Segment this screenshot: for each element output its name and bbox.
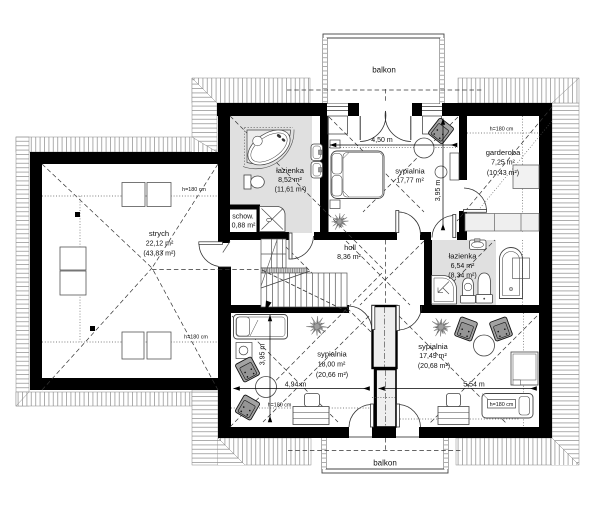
svg-text:h=180 cm: h=180 cm <box>490 402 514 408</box>
svg-text:(20,66 m²): (20,66 m²) <box>316 372 348 379</box>
svg-text:h=180 cm: h=180 cm <box>268 403 292 409</box>
svg-text:h=180 cm: h=180 cm <box>184 335 208 341</box>
svg-text:holl: holl <box>344 243 356 252</box>
svg-text:(43,83 m²): (43,83 m²) <box>143 251 175 258</box>
svg-text:łazienka: łazienka <box>449 252 478 261</box>
svg-text:h=180 cm: h=180 cm <box>490 127 514 133</box>
svg-text:strych: strych <box>149 229 169 238</box>
svg-text:18,00 m²: 18,00 m² <box>318 362 346 369</box>
svg-text:balkon: balkon <box>372 66 396 75</box>
svg-text:22,12 m²: 22,12 m² <box>146 241 174 248</box>
svg-text:łazienka: łazienka <box>276 166 305 175</box>
svg-text:(8,34 m²): (8,34 m²) <box>448 273 476 280</box>
svg-text:4,94 m: 4,94 m <box>285 382 307 389</box>
svg-text:(20,68 m²): (20,68 m²) <box>418 363 450 370</box>
svg-text:3,95 m: 3,95 m <box>260 344 267 366</box>
svg-text:0,88 m²: 0,88 m² <box>232 223 256 230</box>
svg-text:17,49 m²: 17,49 m² <box>419 353 447 360</box>
svg-text:h=180 cm: h=180 cm <box>182 187 206 193</box>
svg-text:garderoba: garderoba <box>486 148 521 157</box>
svg-text:8,52 m²: 8,52 m² <box>278 177 302 184</box>
svg-text:4,50 m: 4,50 m <box>371 137 393 144</box>
svg-text:3,95 m: 3,95 m <box>435 180 442 202</box>
svg-text:(10,43 m²): (10,43 m²) <box>487 170 519 177</box>
svg-text:sypialnia: sypialnia <box>317 350 347 359</box>
svg-text:schow.: schow. <box>232 214 253 221</box>
svg-text:(11,61 m²): (11,61 m²) <box>275 187 307 194</box>
svg-text:8,36 m²: 8,36 m² <box>337 254 361 261</box>
svg-text:7,25 m²: 7,25 m² <box>491 160 515 167</box>
svg-text:5,54 m: 5,54 m <box>463 382 485 389</box>
svg-text:sypialnia: sypialnia <box>418 342 448 351</box>
svg-text:6,54 m²: 6,54 m² <box>451 263 475 270</box>
svg-text:sypialnia: sypialnia <box>395 167 425 176</box>
svg-text:17,77 m²: 17,77 m² <box>396 178 424 185</box>
svg-text:balkon: balkon <box>373 459 397 468</box>
